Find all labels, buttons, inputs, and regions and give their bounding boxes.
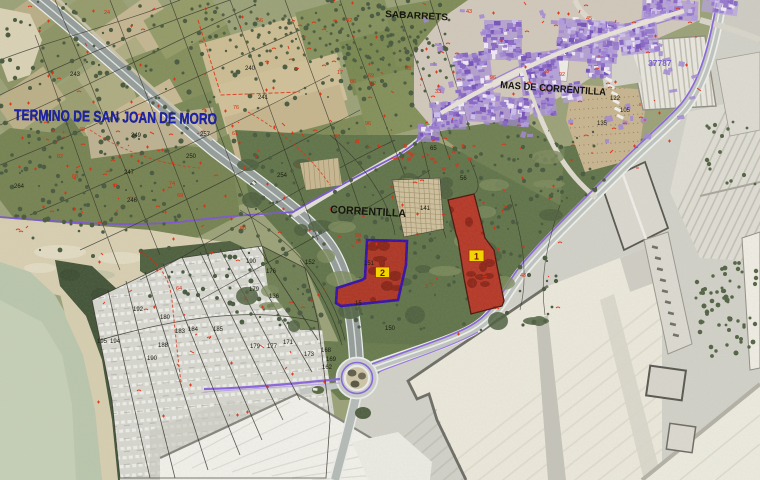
svg-text:56: 56 xyxy=(460,176,467,182)
svg-text:243: 243 xyxy=(70,72,81,78)
svg-text:247: 247 xyxy=(124,170,135,176)
svg-text:92: 92 xyxy=(559,72,565,78)
svg-text:2: 2 xyxy=(380,268,385,278)
svg-text:69: 69 xyxy=(177,193,183,199)
svg-text:135: 135 xyxy=(597,121,608,127)
svg-text:179: 179 xyxy=(250,344,261,350)
svg-text:15: 15 xyxy=(355,301,362,307)
svg-text:185: 185 xyxy=(213,327,224,333)
svg-text:80: 80 xyxy=(240,226,246,232)
svg-text:246: 246 xyxy=(127,198,138,204)
svg-text:43: 43 xyxy=(466,9,472,15)
svg-text:96: 96 xyxy=(490,75,496,81)
svg-text:152: 152 xyxy=(305,260,316,266)
svg-text:45: 45 xyxy=(586,16,592,22)
svg-text:33: 33 xyxy=(435,89,441,95)
svg-text:65: 65 xyxy=(430,146,437,152)
svg-text:105: 105 xyxy=(620,108,631,114)
svg-text:33: 33 xyxy=(334,134,340,140)
svg-text:171: 171 xyxy=(283,340,294,346)
svg-text:48: 48 xyxy=(79,127,85,133)
svg-text:86: 86 xyxy=(350,79,356,85)
svg-text:168: 168 xyxy=(321,348,332,354)
svg-text:177: 177 xyxy=(267,344,278,350)
svg-text:257: 257 xyxy=(200,132,211,138)
svg-text:194: 194 xyxy=(110,339,121,345)
svg-text:169: 169 xyxy=(326,357,337,363)
svg-text:195: 195 xyxy=(97,339,108,345)
svg-text:69: 69 xyxy=(368,73,374,79)
svg-text:173: 173 xyxy=(304,352,315,358)
svg-text:24: 24 xyxy=(104,10,110,16)
svg-text:264: 264 xyxy=(14,184,25,190)
svg-text:74: 74 xyxy=(169,181,175,187)
svg-text:151: 151 xyxy=(364,261,375,267)
svg-text:179: 179 xyxy=(249,287,260,293)
svg-text:176: 176 xyxy=(266,269,277,275)
svg-text:96: 96 xyxy=(365,121,371,127)
svg-text:3: 3 xyxy=(425,284,428,290)
svg-text:13: 13 xyxy=(355,239,361,245)
svg-text:183: 183 xyxy=(175,329,186,335)
svg-text:249: 249 xyxy=(131,133,142,139)
svg-text:190: 190 xyxy=(147,356,158,362)
svg-text:254: 254 xyxy=(277,173,288,179)
svg-text:48: 48 xyxy=(520,273,526,279)
svg-text:65: 65 xyxy=(405,66,411,72)
svg-text:56: 56 xyxy=(257,18,263,24)
svg-text:1: 1 xyxy=(474,252,479,262)
svg-text:184: 184 xyxy=(188,327,199,333)
svg-text:37787: 37787 xyxy=(648,58,672,68)
svg-text:68: 68 xyxy=(72,174,78,180)
svg-text:150: 150 xyxy=(385,326,396,332)
svg-text:188: 188 xyxy=(158,343,169,349)
svg-text:250: 250 xyxy=(186,154,197,160)
svg-text:58: 58 xyxy=(355,233,361,239)
svg-text:82: 82 xyxy=(57,154,63,160)
svg-text:190: 190 xyxy=(246,259,257,265)
svg-text:61: 61 xyxy=(232,131,238,137)
svg-text:76: 76 xyxy=(233,105,239,111)
svg-text:42: 42 xyxy=(346,18,352,24)
svg-text:162: 162 xyxy=(322,365,333,371)
svg-text:52: 52 xyxy=(370,81,376,87)
svg-text:180: 180 xyxy=(160,315,171,321)
svg-text:17: 17 xyxy=(337,70,343,76)
svg-text:192: 192 xyxy=(133,307,144,313)
svg-text:241: 241 xyxy=(258,95,269,101)
svg-text:141: 141 xyxy=(420,206,431,212)
svg-text:240: 240 xyxy=(245,66,256,72)
svg-text:136: 136 xyxy=(269,294,280,300)
svg-text:122: 122 xyxy=(610,96,621,102)
svg-text:64: 64 xyxy=(176,286,182,292)
svg-text:98: 98 xyxy=(543,69,549,75)
